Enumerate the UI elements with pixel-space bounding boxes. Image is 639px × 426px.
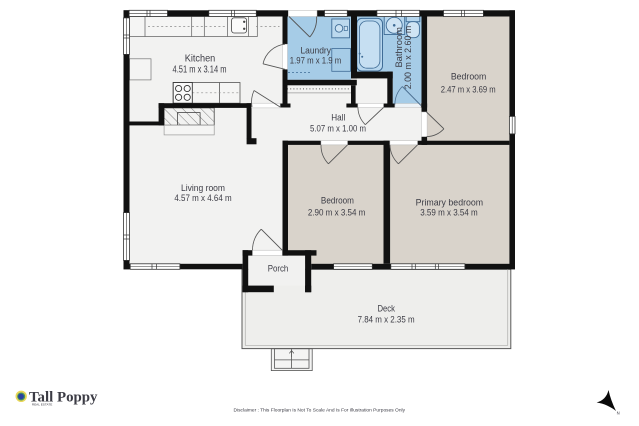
- svg-text:2.47 m x 3.69 m: 2.47 m x 3.69 m: [441, 85, 496, 96]
- svg-text:Bedroom: Bedroom: [451, 72, 487, 83]
- svg-text:Hall: Hall: [331, 113, 345, 124]
- svg-text:Disclaimer : This Floorplan Is: Disclaimer : This Floorplan Is Not To Sc…: [234, 408, 406, 413]
- svg-text:N: N: [617, 411, 620, 416]
- svg-text:4.51 m x 3.14 m: 4.51 m x 3.14 m: [173, 65, 227, 76]
- svg-text:Kitchen: Kitchen: [185, 53, 216, 64]
- svg-text:3.59 m x 3.54 m: 3.59 m x 3.54 m: [420, 208, 478, 219]
- svg-text:4.57 m x 4.64 m: 4.57 m x 4.64 m: [174, 193, 231, 204]
- svg-text:REAL ESTATE: REAL ESTATE: [32, 403, 52, 407]
- svg-text:7.84 m x 2.35 m: 7.84 m x 2.35 m: [358, 315, 415, 326]
- svg-text:5.07 m x 1.00 m: 5.07 m x 1.00 m: [310, 123, 366, 134]
- svg-text:Bedroom: Bedroom: [321, 195, 354, 206]
- svg-text:2.00 m x 2.60 m: 2.00 m x 2.60 m: [402, 26, 413, 90]
- svg-text:Deck: Deck: [377, 304, 395, 315]
- svg-text:Porch: Porch: [268, 263, 289, 273]
- svg-text:2.90 m x 3.54 m: 2.90 m x 3.54 m: [308, 207, 366, 218]
- svg-text:1.97 m x 1.9 m: 1.97 m x 1.9 m: [290, 55, 342, 66]
